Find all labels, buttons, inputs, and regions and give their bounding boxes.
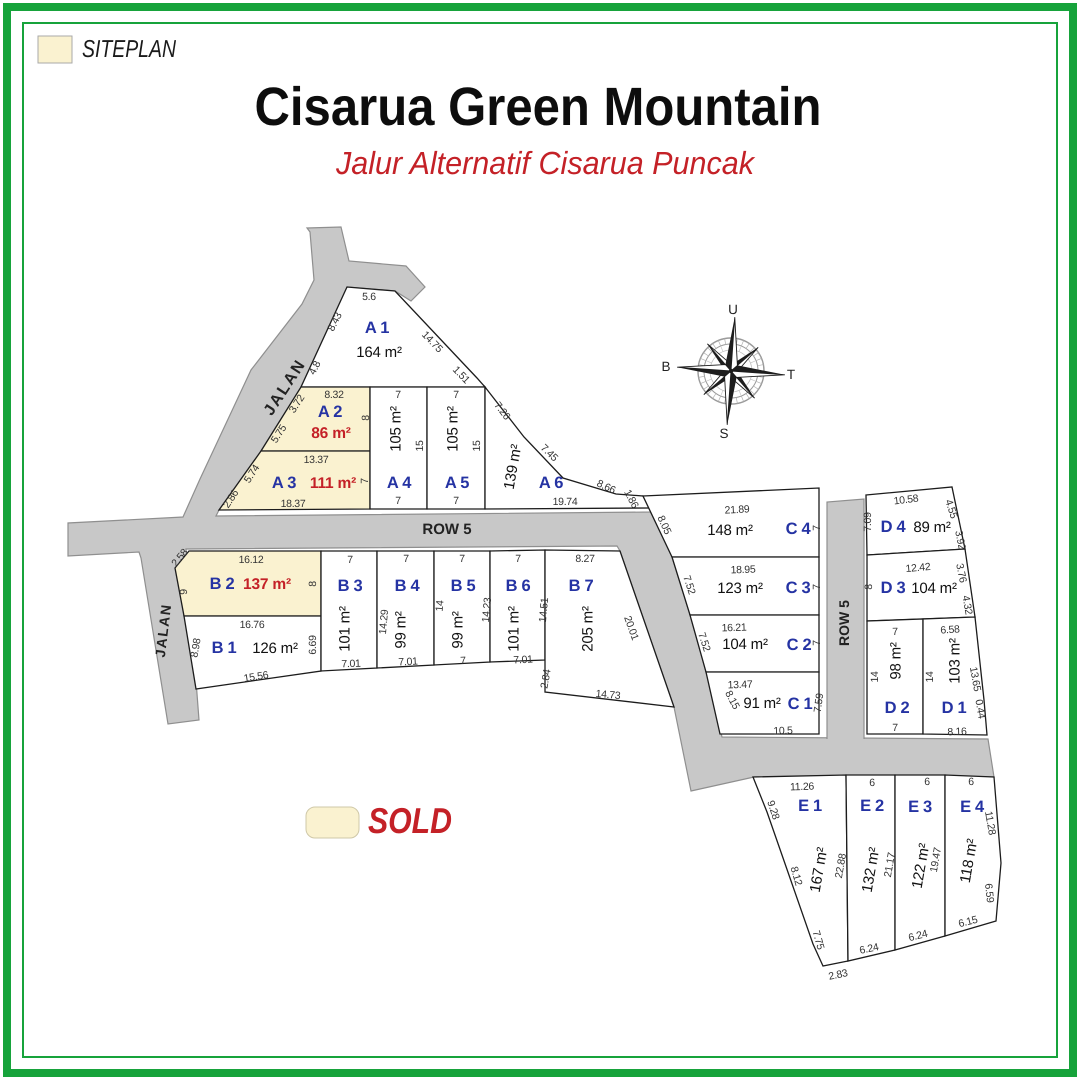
svg-text:7.59: 7.59	[812, 692, 827, 713]
svg-text:123 m²: 123 m²	[717, 580, 763, 597]
svg-text:16.12: 16.12	[239, 554, 264, 566]
svg-text:D 3: D 3	[881, 579, 906, 597]
svg-text:19.74: 19.74	[553, 496, 578, 508]
svg-text:7: 7	[395, 495, 401, 507]
svg-text:14: 14	[434, 600, 447, 613]
svg-text:6: 6	[924, 776, 930, 788]
svg-text:14.73: 14.73	[595, 688, 621, 702]
svg-text:14.51: 14.51	[537, 597, 551, 623]
svg-text:7: 7	[403, 553, 409, 565]
svg-text:16.21: 16.21	[721, 622, 747, 635]
svg-text:15.56: 15.56	[243, 669, 270, 685]
svg-text:8.27: 8.27	[575, 553, 595, 565]
svg-text:ROW 5: ROW 5	[836, 600, 852, 646]
svg-text:11.26: 11.26	[790, 781, 815, 794]
svg-text:8.32: 8.32	[324, 389, 344, 401]
svg-text:89 m²: 89 m²	[913, 519, 951, 536]
svg-text:99 m²: 99 m²	[450, 611, 467, 649]
svg-text:91 m²: 91 m²	[743, 695, 781, 712]
svg-text:B 2: B 2	[210, 575, 235, 593]
svg-text:21.89: 21.89	[724, 503, 750, 516]
svg-text:6: 6	[968, 776, 974, 788]
svg-text:C 2: C 2	[787, 636, 812, 654]
svg-text:7.01: 7.01	[398, 655, 418, 668]
svg-text:101 m²: 101 m²	[506, 606, 523, 652]
svg-text:98 m²: 98 m²	[888, 642, 905, 680]
svg-text:A 3: A 3	[272, 474, 296, 492]
svg-text:14.23: 14.23	[480, 597, 494, 623]
svg-text:B 1: B 1	[212, 639, 237, 657]
svg-text:148 m²: 148 m²	[707, 522, 753, 539]
svg-text:Cisarua Green Mountain: Cisarua Green Mountain	[255, 77, 822, 137]
svg-text:14.29: 14.29	[377, 609, 391, 635]
svg-text:SITEPLAN: SITEPLAN	[82, 36, 176, 63]
svg-text:7.09: 7.09	[862, 512, 874, 532]
svg-text:13.37: 13.37	[304, 454, 329, 466]
svg-text:Jalur Alternatif Cisarua Punca: Jalur Alternatif Cisarua Puncak	[335, 145, 756, 181]
svg-text:6.69: 6.69	[307, 635, 319, 655]
svg-text:15: 15	[471, 440, 483, 452]
svg-text:7: 7	[811, 525, 823, 531]
svg-text:13.47: 13.47	[727, 679, 753, 692]
svg-text:A 1: A 1	[365, 319, 389, 337]
svg-text:B 7: B 7	[569, 577, 594, 595]
svg-text:126 m²: 126 m²	[252, 640, 298, 657]
svg-text:6: 6	[869, 777, 875, 789]
svg-text:E 2: E 2	[860, 797, 884, 815]
svg-text:9: 9	[178, 589, 190, 595]
svg-text:D 1: D 1	[942, 699, 967, 717]
svg-text:8: 8	[863, 584, 875, 590]
svg-text:T: T	[787, 367, 795, 382]
svg-text:101 m²: 101 m²	[337, 606, 354, 652]
svg-text:B 5: B 5	[451, 577, 476, 595]
svg-text:6.58: 6.58	[940, 623, 960, 636]
svg-text:A 5: A 5	[445, 474, 469, 492]
svg-text:7: 7	[811, 640, 823, 646]
svg-text:7: 7	[459, 553, 465, 565]
svg-text:6.59: 6.59	[982, 883, 996, 904]
svg-text:15: 15	[414, 440, 426, 452]
svg-text:E 1: E 1	[798, 797, 822, 815]
svg-text:7: 7	[811, 584, 823, 590]
svg-text:5.6: 5.6	[362, 291, 376, 303]
svg-text:16.76: 16.76	[240, 619, 265, 631]
svg-text:104 m²: 104 m²	[911, 580, 957, 597]
svg-text:205 m²: 205 m²	[580, 606, 597, 652]
svg-text:8.16: 8.16	[947, 726, 967, 739]
svg-text:7: 7	[460, 655, 467, 667]
svg-text:D 4: D 4	[881, 518, 907, 536]
svg-text:7: 7	[395, 389, 401, 401]
svg-text:111 m²: 111 m²	[310, 475, 356, 492]
svg-text:B 4: B 4	[395, 577, 421, 595]
svg-text:S: S	[719, 426, 728, 441]
svg-text:SOLD: SOLD	[368, 800, 452, 841]
svg-text:105 m²: 105 m²	[445, 406, 462, 452]
svg-text:8: 8	[360, 415, 372, 421]
svg-text:7: 7	[347, 554, 353, 566]
svg-text:7: 7	[359, 478, 371, 484]
svg-text:7: 7	[892, 626, 898, 638]
svg-text:A 6: A 6	[539, 474, 563, 492]
svg-text:104 m²: 104 m²	[722, 636, 768, 653]
svg-text:7: 7	[453, 389, 459, 401]
svg-text:C 1: C 1	[788, 695, 813, 713]
svg-text:164 m²: 164 m²	[356, 344, 402, 361]
svg-text:7.01: 7.01	[513, 653, 533, 666]
svg-text:C 3: C 3	[786, 579, 811, 597]
svg-text:C 4: C 4	[786, 520, 812, 538]
svg-text:7: 7	[892, 722, 898, 734]
svg-text:B 6: B 6	[506, 577, 531, 595]
svg-text:14: 14	[924, 671, 936, 683]
svg-text:10.5: 10.5	[773, 725, 793, 738]
svg-text:E 3: E 3	[908, 798, 932, 816]
svg-text:7: 7	[453, 495, 459, 507]
svg-text:14: 14	[869, 671, 881, 683]
svg-text:ROW 5: ROW 5	[422, 521, 471, 538]
svg-text:103 m²: 103 m²	[947, 638, 964, 684]
svg-text:E 4: E 4	[960, 798, 985, 816]
svg-text:86 m²: 86 m²	[311, 425, 351, 442]
svg-text:105 m²: 105 m²	[388, 406, 405, 452]
svg-text:7.01: 7.01	[341, 658, 361, 671]
svg-text:A 4: A 4	[387, 474, 412, 492]
svg-text:8: 8	[307, 581, 319, 587]
svg-text:18.95: 18.95	[730, 564, 756, 577]
svg-text:7: 7	[515, 553, 521, 565]
svg-text:18.37: 18.37	[281, 498, 306, 510]
svg-text:U: U	[728, 302, 738, 317]
svg-text:137 m²: 137 m²	[243, 576, 291, 593]
svg-text:D 2: D 2	[885, 699, 910, 717]
svg-text:12.42: 12.42	[905, 561, 931, 575]
svg-text:2.83: 2.83	[827, 967, 849, 983]
svg-text:A 2: A 2	[318, 403, 342, 421]
svg-text:99 m²: 99 m²	[393, 611, 410, 649]
svg-text:B 3: B 3	[338, 577, 363, 595]
svg-text:B: B	[661, 359, 670, 374]
